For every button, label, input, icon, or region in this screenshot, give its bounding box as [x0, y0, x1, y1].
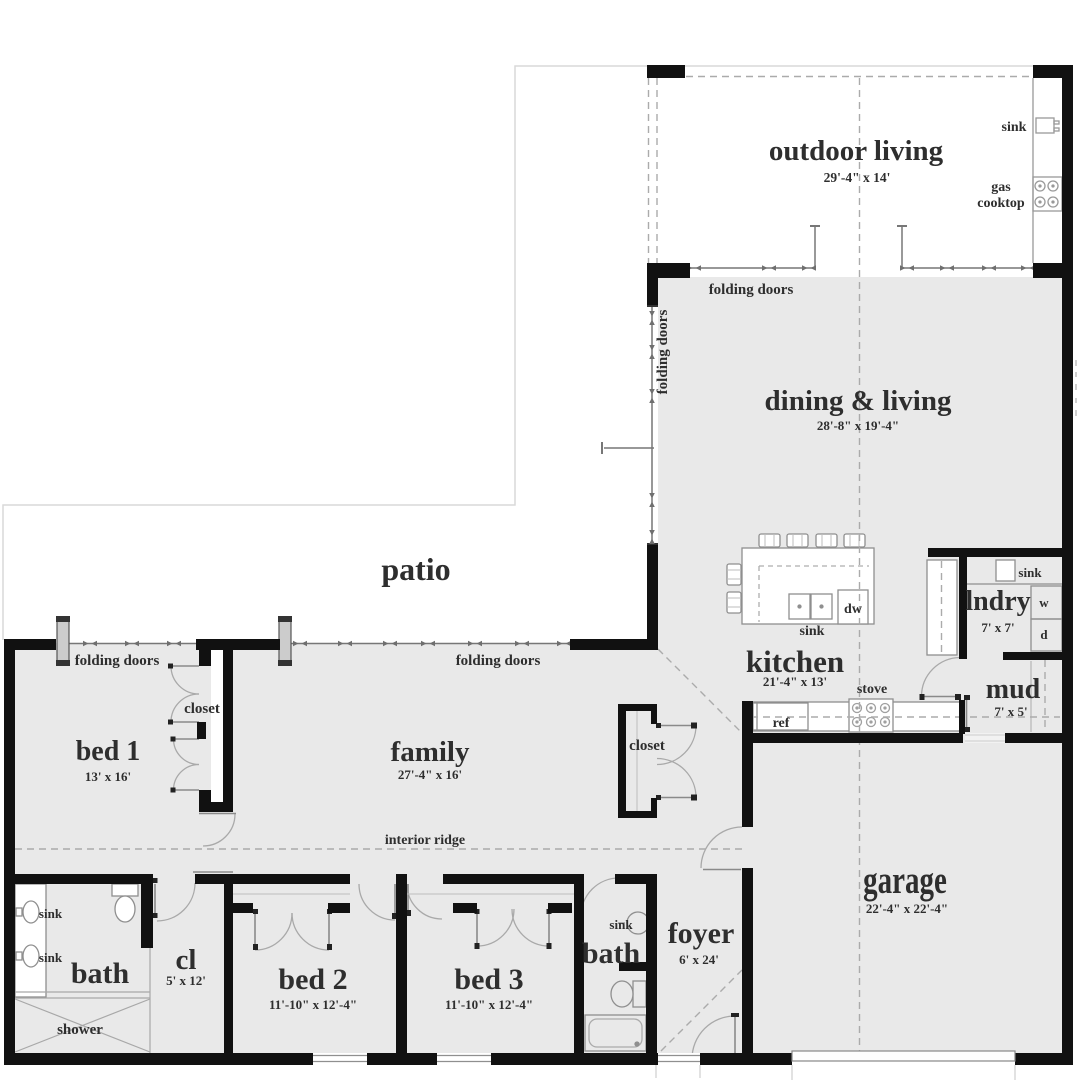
svg-text:13' x 16': 13' x 16': [85, 769, 131, 784]
svg-text:sink: sink: [1018, 565, 1042, 580]
svg-text:bed 1: bed 1: [76, 736, 141, 767]
svg-text:sink: sink: [39, 950, 63, 965]
svg-text:22'-4" x 22'-4": 22'-4" x 22'-4": [866, 901, 948, 916]
svg-text:stove: stove: [857, 682, 887, 697]
svg-text:garage: garage: [863, 859, 947, 902]
svg-text:29'-4" x 14': 29'-4" x 14': [824, 170, 891, 185]
svg-text:sink: sink: [39, 906, 63, 921]
svg-text:closet: closet: [184, 701, 220, 717]
svg-text:bath: bath: [71, 957, 130, 990]
svg-text:21'-4" x 13': 21'-4" x 13': [763, 674, 827, 689]
svg-text:shower: shower: [57, 1022, 103, 1038]
svg-text:patio: patio: [381, 551, 450, 587]
svg-text:bed 3: bed 3: [454, 963, 523, 996]
svg-text:ref: ref: [773, 716, 790, 731]
svg-text:gas: gas: [991, 180, 1011, 195]
svg-text:folding doors: folding doors: [655, 310, 671, 395]
svg-text:sink: sink: [609, 917, 633, 932]
svg-text:folding doors: folding doors: [456, 653, 541, 669]
svg-text:folding doors: folding doors: [709, 282, 794, 298]
svg-text:foyer: foyer: [668, 917, 735, 950]
svg-text:bed 2: bed 2: [278, 963, 347, 996]
svg-text:closet: closet: [629, 738, 665, 754]
svg-text:sink: sink: [800, 624, 825, 639]
svg-text:7' x 7': 7' x 7': [981, 620, 1014, 635]
svg-text:interior ridge: interior ridge: [385, 833, 465, 848]
svg-text:w: w: [1039, 595, 1049, 610]
svg-text:27'-4" x 16': 27'-4" x 16': [398, 767, 462, 782]
svg-text:sink: sink: [1002, 120, 1027, 135]
svg-text:cl: cl: [176, 944, 197, 976]
svg-text:dw: dw: [844, 602, 863, 617]
svg-text:outdoor living: outdoor living: [769, 135, 944, 167]
svg-text:7' x 5': 7' x 5': [994, 704, 1027, 719]
svg-text:d: d: [1040, 627, 1048, 642]
svg-text:family: family: [391, 736, 470, 768]
svg-text:11'-10" x 12'-4": 11'-10" x 12'-4": [445, 997, 533, 1012]
svg-text:5' x 12': 5' x 12': [166, 973, 206, 988]
svg-text:11'-10" x 12'-4": 11'-10" x 12'-4": [269, 997, 357, 1012]
svg-text:folding doors: folding doors: [75, 653, 160, 669]
svg-text:bath: bath: [582, 937, 641, 970]
svg-text:6' x 24': 6' x 24': [679, 952, 719, 967]
svg-text:lndry: lndry: [965, 586, 1030, 617]
svg-text:cooktop: cooktop: [977, 196, 1025, 211]
svg-text:mud: mud: [986, 674, 1041, 705]
svg-text:28'-8" x 19'-4": 28'-8" x 19'-4": [817, 418, 899, 433]
svg-text:dining & living: dining & living: [765, 385, 952, 417]
